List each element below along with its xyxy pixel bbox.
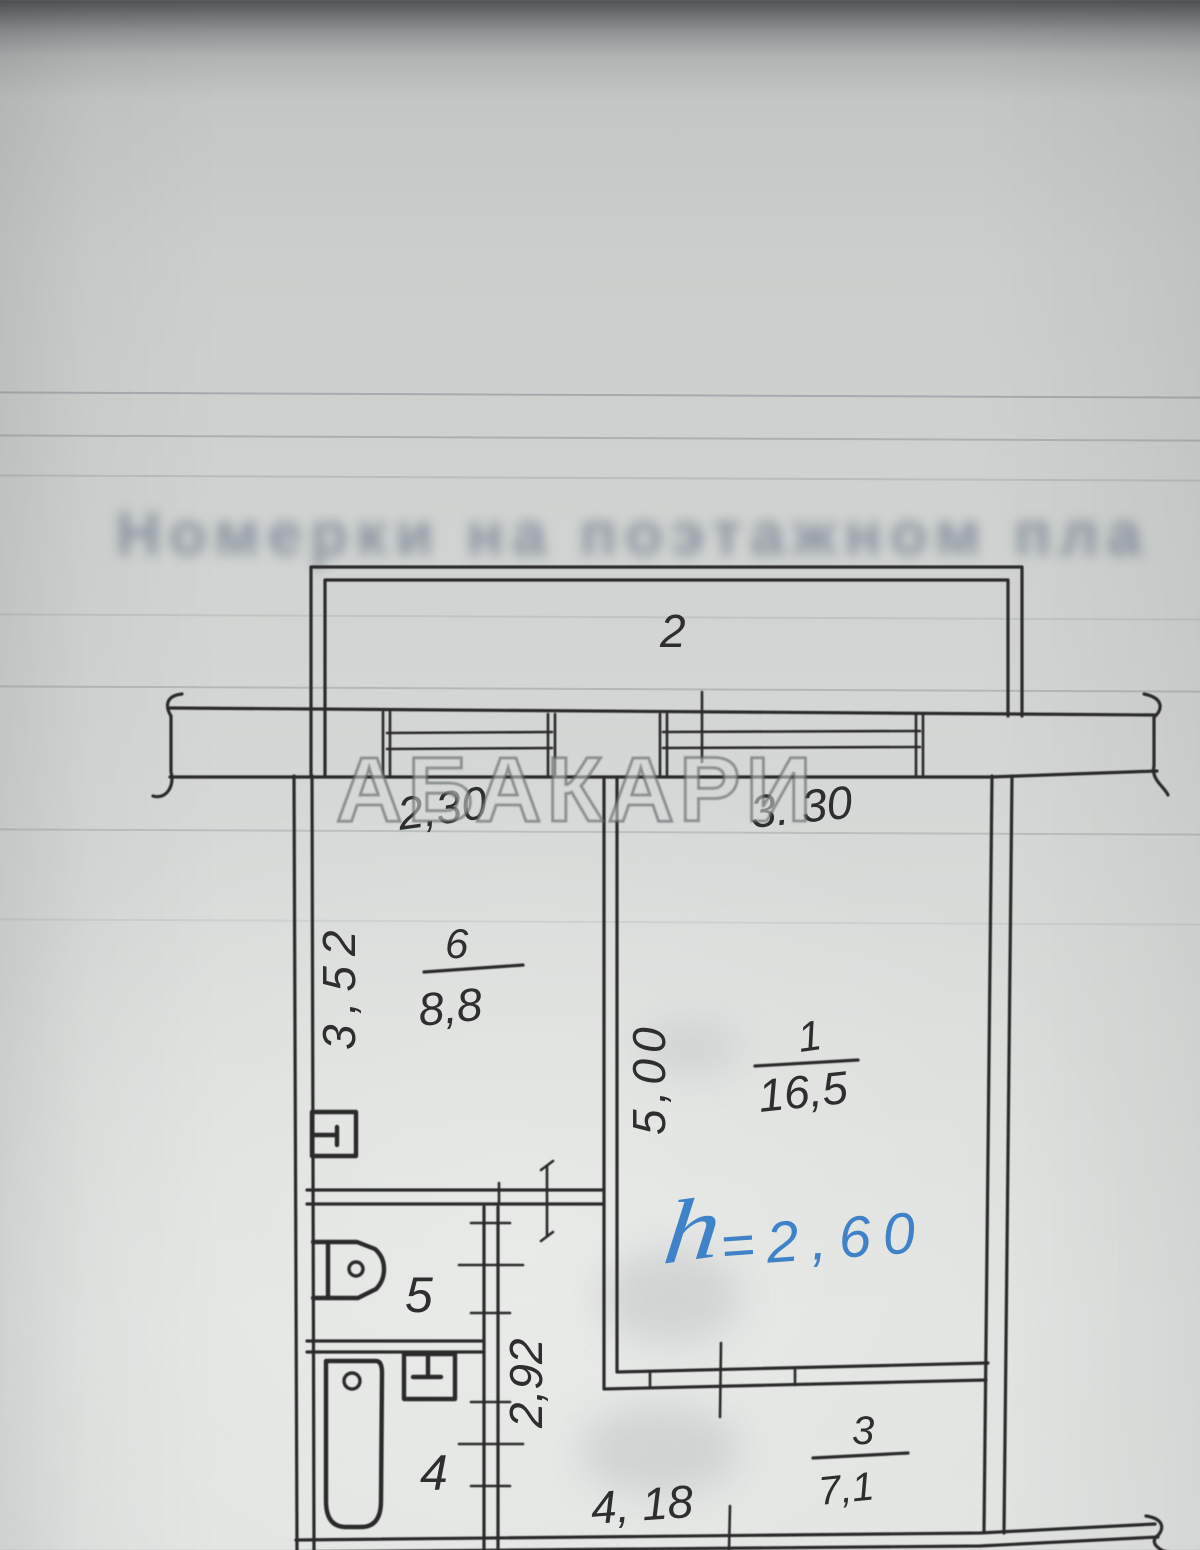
svg-text:5,00: 5,00	[623, 1021, 675, 1135]
svg-text:4, 18: 4, 18	[589, 1475, 695, 1534]
svg-text:2: 2	[659, 605, 686, 657]
svg-text:5: 5	[405, 1267, 433, 1323]
svg-text:7,1: 7,1	[816, 1464, 876, 1514]
svg-text:3: 3	[852, 1409, 874, 1453]
svg-text:6: 6	[445, 920, 469, 967]
svg-text:4: 4	[420, 1445, 448, 1501]
svg-text:1: 1	[795, 1011, 825, 1061]
svg-text:h: h	[659, 1177, 726, 1285]
svg-text:3,52: 3,52	[313, 920, 365, 1050]
svg-text:8,8: 8,8	[416, 978, 485, 1036]
svg-text:16,5: 16,5	[756, 1061, 851, 1122]
svg-text:=2,60: =2,60	[718, 1200, 929, 1279]
svg-text:2,92: 2,92	[500, 1338, 552, 1429]
